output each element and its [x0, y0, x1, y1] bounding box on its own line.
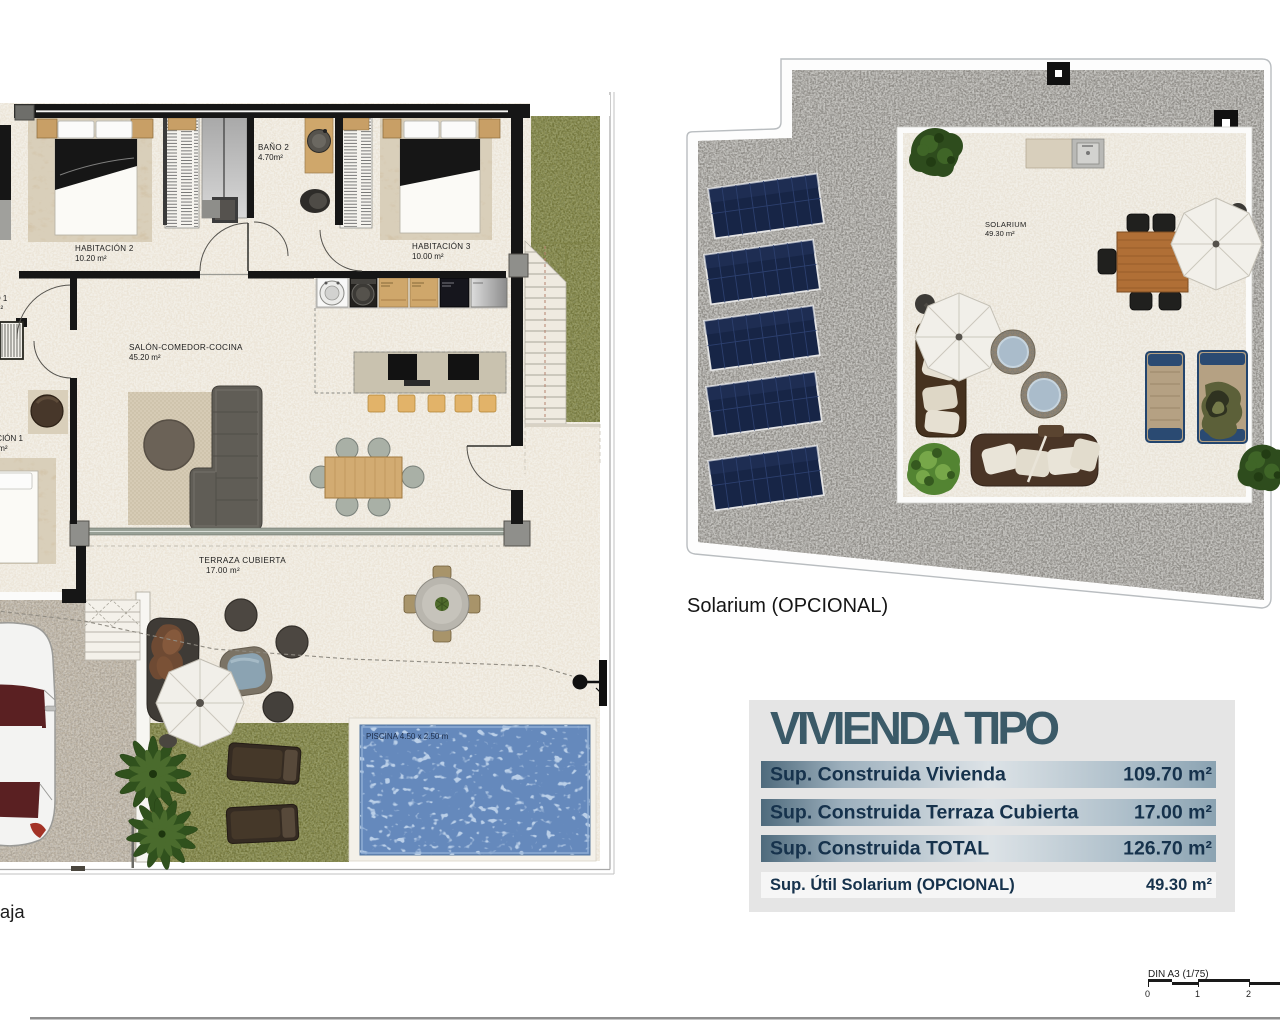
svg-text:PISCINA 4.50 x 2.50 m: PISCINA 4.50 x 2.50 m: [366, 732, 449, 741]
svg-text:SOLARIUM: SOLARIUM: [985, 220, 1027, 229]
svg-text:Sup. Construida Terraza Cubier: Sup. Construida Terraza Cubierta: [770, 802, 1079, 824]
svg-text:Sup. Construida Vivienda: Sup. Construida Vivienda: [770, 764, 1006, 786]
svg-text:SALÓN-COMEDOR-COCINA: SALÓN-COMEDOR-COCINA: [129, 342, 243, 352]
svg-text:17.00 m²: 17.00 m²: [206, 566, 240, 575]
svg-text:HABITACIÓN 3: HABITACIÓN 3: [412, 242, 471, 251]
svg-text:HABITACIÓN 1: HABITACIÓN 1: [0, 434, 24, 443]
svg-text:4.20 m²: 4.20 m²: [0, 304, 3, 313]
svg-text:10.00 m²: 10.00 m²: [412, 252, 444, 261]
svg-text:Planta Baja: Planta Baja: [0, 901, 25, 922]
svg-text:17.00 m²: 17.00 m²: [1134, 802, 1213, 824]
svg-text:Sup. Construida TOTAL: Sup. Construida TOTAL: [770, 838, 989, 860]
svg-text:4.70m²: 4.70m²: [258, 153, 283, 162]
svg-text:126.70 m²: 126.70 m²: [1123, 838, 1212, 860]
svg-text:2: 2: [1246, 989, 1251, 999]
svg-text:VIVIENDA TIPO: VIVIENDA TIPO: [770, 702, 1058, 754]
svg-text:0: 0: [1145, 989, 1150, 999]
svg-text:BAÑO 2: BAÑO 2: [258, 143, 289, 152]
svg-text:109.70 m²: 109.70 m²: [1123, 764, 1212, 786]
svg-text:10.20 m²: 10.20 m²: [75, 254, 107, 263]
svg-text:1: 1: [1195, 989, 1200, 999]
svg-text:HABITACIÓN 2: HABITACIÓN 2: [75, 244, 134, 253]
svg-text:TERRAZA CUBIERTA: TERRAZA CUBIERTA: [199, 556, 286, 565]
svg-text:BAÑO 1: BAÑO 1: [0, 294, 8, 303]
svg-text:DIN A3 (1/75): DIN A3 (1/75): [1148, 969, 1209, 980]
svg-text:49.30 m²: 49.30 m²: [1146, 876, 1213, 894]
svg-text:Solarium (OPCIONAL): Solarium (OPCIONAL): [687, 595, 888, 617]
svg-text:49.30 m²: 49.30 m²: [985, 229, 1015, 238]
svg-text:10.20 m²: 10.20 m²: [0, 444, 8, 453]
svg-text:45.20 m²: 45.20 m²: [129, 353, 161, 362]
svg-text:Sup. Útil Solarium (OPCIONAL): Sup. Útil Solarium (OPCIONAL): [770, 875, 1015, 894]
